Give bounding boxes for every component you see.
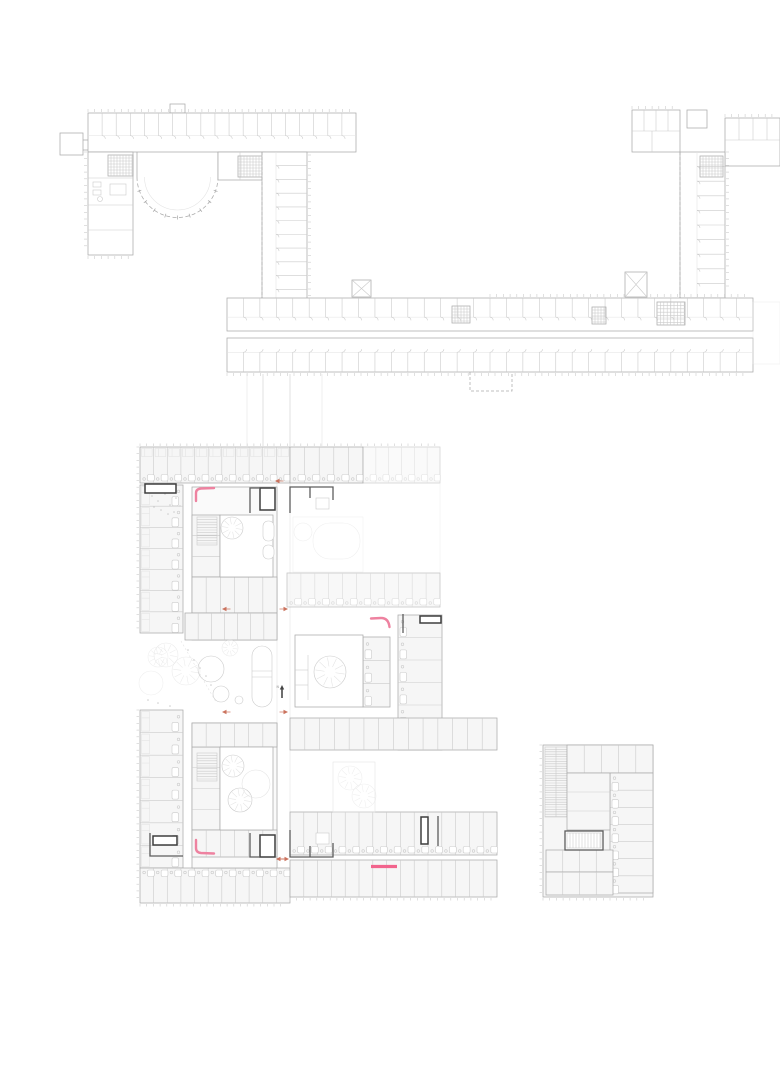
bathroom-pod <box>383 475 389 482</box>
bathroom-pod <box>216 870 223 877</box>
room-row <box>546 872 613 895</box>
drawing-sheet: N <box>0 0 780 1081</box>
bathroom-pod <box>172 813 179 822</box>
room-row <box>140 447 291 483</box>
garden-oval <box>252 646 272 707</box>
ghost-extension <box>753 302 780 364</box>
bathroom-pod <box>313 475 320 482</box>
bathroom-pod <box>353 847 360 854</box>
bathroom-pod <box>148 475 155 482</box>
pond <box>198 656 224 682</box>
tree-icon <box>222 640 238 656</box>
west-gallery-wing <box>262 152 307 303</box>
planting-circle <box>139 671 163 695</box>
bathroom-pod <box>421 475 427 482</box>
room-column <box>192 747 220 830</box>
window-ticks <box>290 898 491 901</box>
elevator-shaft-icon <box>625 272 647 297</box>
room-column <box>363 637 390 707</box>
link-box <box>687 110 707 128</box>
bathroom-pod <box>477 847 484 854</box>
bathroom-pod <box>172 560 179 569</box>
window-ticks <box>540 745 543 892</box>
window-ticks <box>140 444 435 447</box>
annex-building-plan <box>540 745 654 901</box>
bathroom-pod <box>202 475 209 482</box>
courtyard <box>220 747 273 830</box>
pond <box>213 686 229 702</box>
bathroom-pod <box>298 847 305 854</box>
rotunda-inner-arc <box>145 177 211 210</box>
window-ticks <box>137 447 140 628</box>
bathroom-pod <box>434 475 440 482</box>
bathroom-pod <box>229 475 236 482</box>
window-ticks <box>726 152 729 286</box>
bathroom-pod <box>172 602 179 611</box>
room-row <box>192 577 277 613</box>
bathroom-pod <box>364 599 371 606</box>
dark-room <box>260 835 275 857</box>
dark-room <box>260 488 275 510</box>
existing-building-plan <box>60 104 780 391</box>
room-row <box>567 745 653 773</box>
bathroom-pod <box>175 870 182 877</box>
bathroom-pod <box>370 475 376 482</box>
floor-plan-canvas: N <box>0 0 780 1081</box>
bathroom-pod <box>243 870 250 877</box>
bathroom-pod <box>172 539 179 548</box>
northeast-extension <box>725 118 780 166</box>
bathroom-pod <box>172 768 179 777</box>
courtyard <box>295 635 363 707</box>
room-row <box>290 718 497 750</box>
garden-path <box>181 641 216 702</box>
bathroom-pod <box>436 847 443 854</box>
ghost-pool <box>313 523 360 559</box>
bathroom-pod <box>216 475 223 482</box>
window-ticks <box>632 106 672 109</box>
north-label: N <box>277 685 280 689</box>
south-wing-south-row <box>227 338 753 372</box>
bathroom-pod <box>243 475 250 482</box>
bathroom-pod <box>491 847 498 854</box>
bathroom-pod <box>380 847 387 854</box>
bathroom-pod <box>172 623 179 632</box>
north-wing <box>88 113 356 152</box>
bathroom-pod <box>257 475 264 482</box>
bathroom-pod <box>270 475 277 482</box>
north-arrow-icon: N <box>277 685 285 698</box>
bathroom-pod <box>257 870 264 877</box>
bathroom-pod <box>392 599 399 606</box>
room-row <box>192 723 277 747</box>
bathroom-pod <box>229 870 236 877</box>
bathroom-pod <box>270 870 277 877</box>
bathroom-pod <box>365 697 372 706</box>
room-row <box>290 447 364 483</box>
bathroom-pod <box>336 599 343 606</box>
window-ticks <box>88 256 128 259</box>
window-ticks <box>137 710 140 898</box>
section-marker-icon <box>280 710 289 715</box>
bathroom-pod <box>400 695 407 704</box>
dashed-porch <box>470 372 512 391</box>
room-column <box>567 773 610 830</box>
bathroom-pod <box>420 599 427 606</box>
rotunda-arc <box>137 177 218 218</box>
room-row <box>546 850 613 872</box>
bathroom-pod <box>342 475 349 482</box>
section-marker-icon <box>222 710 231 715</box>
tree-icon <box>172 657 200 685</box>
bathroom-pod <box>202 870 209 877</box>
room-row <box>185 613 277 640</box>
bathroom-pod <box>161 870 168 877</box>
bathroom-pod <box>406 599 413 606</box>
bathroom-pod <box>325 847 332 854</box>
bathroom-pod <box>172 518 179 527</box>
bathroom-pod <box>188 475 195 482</box>
room-column <box>610 773 653 894</box>
bathroom-pod <box>612 834 619 843</box>
bathroom-pod <box>400 672 407 681</box>
bathroom-pod <box>148 870 155 877</box>
bathroom-pod <box>298 475 305 482</box>
bathroom-pod <box>409 475 415 482</box>
window-ticks <box>227 373 743 376</box>
window-ticks <box>725 114 772 117</box>
tree-icon <box>338 766 362 790</box>
roof-bump <box>170 104 185 113</box>
bathroom-pod <box>612 817 619 826</box>
bathroom-pod <box>161 475 168 482</box>
bathroom-pod <box>309 599 316 606</box>
bathroom-pod <box>394 847 401 854</box>
bathroom-pod <box>172 858 179 867</box>
section-marker-icon <box>280 607 289 612</box>
bathroom-pod <box>327 475 334 482</box>
bathroom-pod <box>612 800 619 809</box>
bathroom-pod <box>434 599 441 606</box>
bathroom-pod <box>350 599 357 606</box>
annex-box <box>60 133 83 155</box>
room-column <box>140 485 183 633</box>
bathroom-pod <box>367 847 374 854</box>
tree-icon <box>352 784 376 808</box>
bathroom-pod <box>311 847 318 854</box>
bathroom-pod <box>400 650 407 659</box>
window-ticks <box>140 904 281 907</box>
new-building-plan <box>137 444 498 907</box>
bathroom-pod <box>172 745 179 754</box>
dark-furniture <box>421 817 428 844</box>
window-ticks <box>308 155 311 296</box>
bathroom-pod <box>396 475 402 482</box>
bathroom-pod <box>365 650 372 659</box>
bathroom-pod <box>378 599 385 606</box>
bathroom-pod <box>172 790 179 799</box>
bathroom-pod <box>463 847 470 854</box>
section-marker-icon <box>281 857 290 862</box>
bathroom-pod <box>188 870 195 877</box>
bathroom-pod <box>322 599 329 606</box>
window-ticks <box>84 152 87 246</box>
section-trace-connectors <box>247 374 322 446</box>
room-row-ghost <box>287 573 441 607</box>
room-column <box>192 515 220 577</box>
pink-highlight-mark <box>371 618 390 627</box>
bathroom-pod <box>175 475 182 482</box>
bathroom-pod <box>172 722 179 731</box>
bathroom-pod <box>365 673 372 682</box>
bathroom-pod <box>449 847 456 854</box>
room-row-ghost <box>363 447 441 483</box>
ghost-court <box>293 517 363 572</box>
bathroom-pod <box>408 847 415 854</box>
bathroom-pod <box>422 847 429 854</box>
room-row <box>140 868 291 903</box>
elevator-shaft-icon <box>352 280 371 297</box>
stair-hatch <box>452 306 470 323</box>
bathroom-pod <box>295 599 302 606</box>
window-ticks <box>88 109 349 112</box>
dark-furniture <box>420 616 441 623</box>
dark-furniture <box>145 484 176 493</box>
dark-furniture <box>153 836 177 845</box>
window-ticks <box>543 898 644 901</box>
bathroom-pod <box>339 847 346 854</box>
bathroom-pod <box>172 581 179 590</box>
bathroom-pod <box>612 782 619 791</box>
